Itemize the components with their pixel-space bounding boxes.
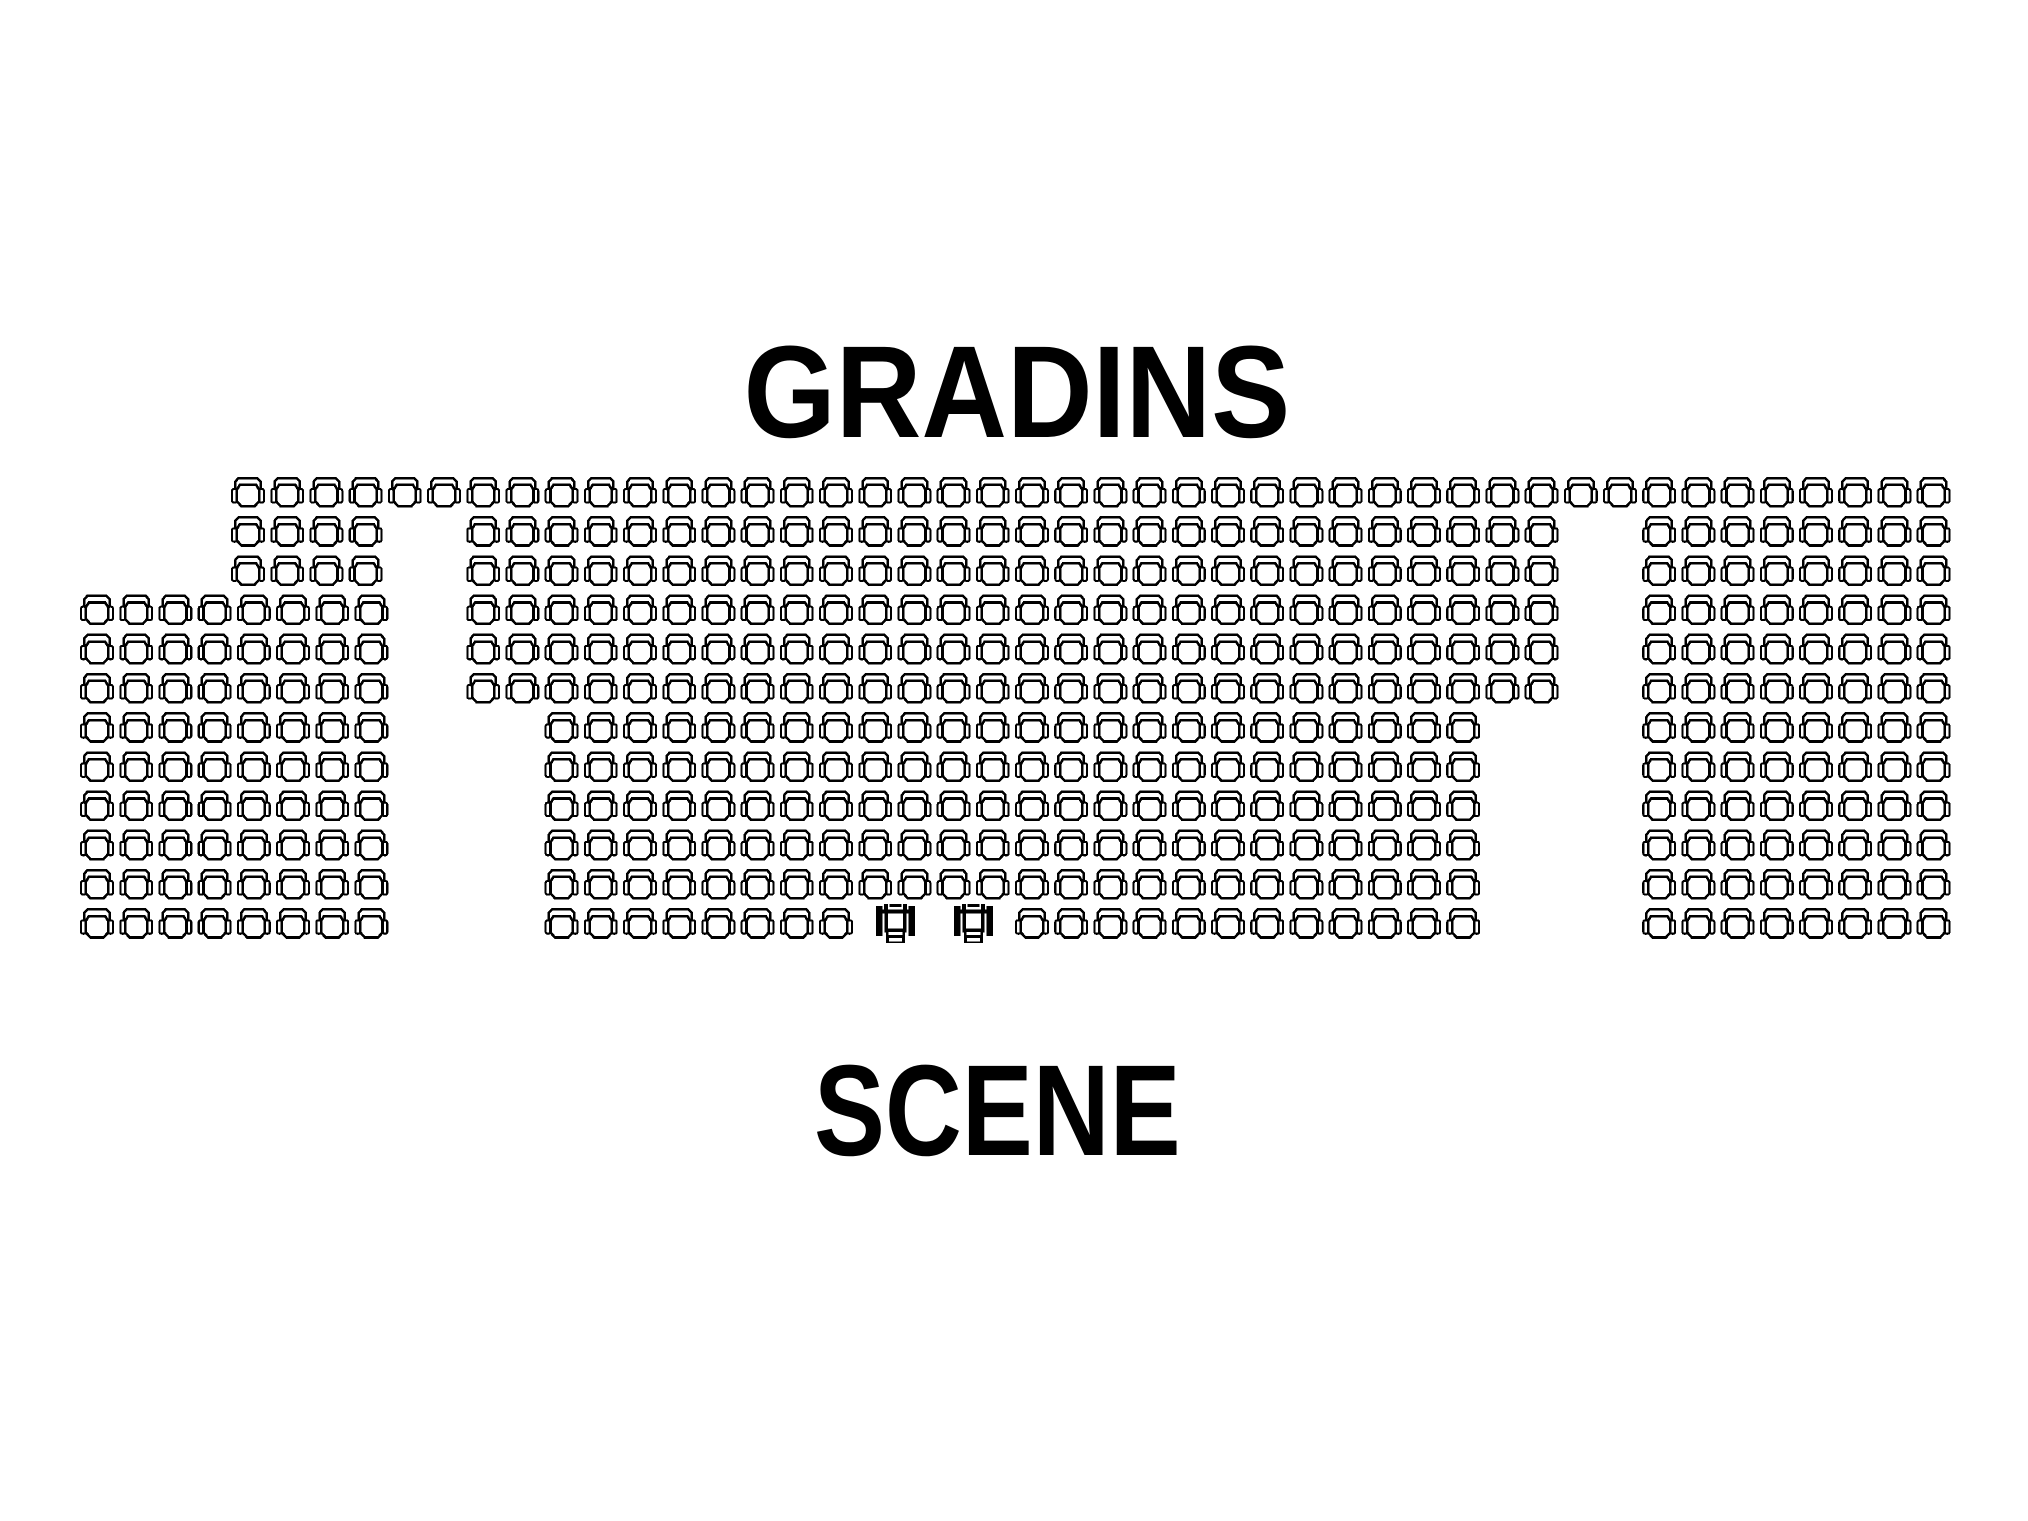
svg-text:GRADINS: GRADINS: [744, 320, 1291, 466]
svg-text:SCENE: SCENE: [814, 1039, 1181, 1183]
